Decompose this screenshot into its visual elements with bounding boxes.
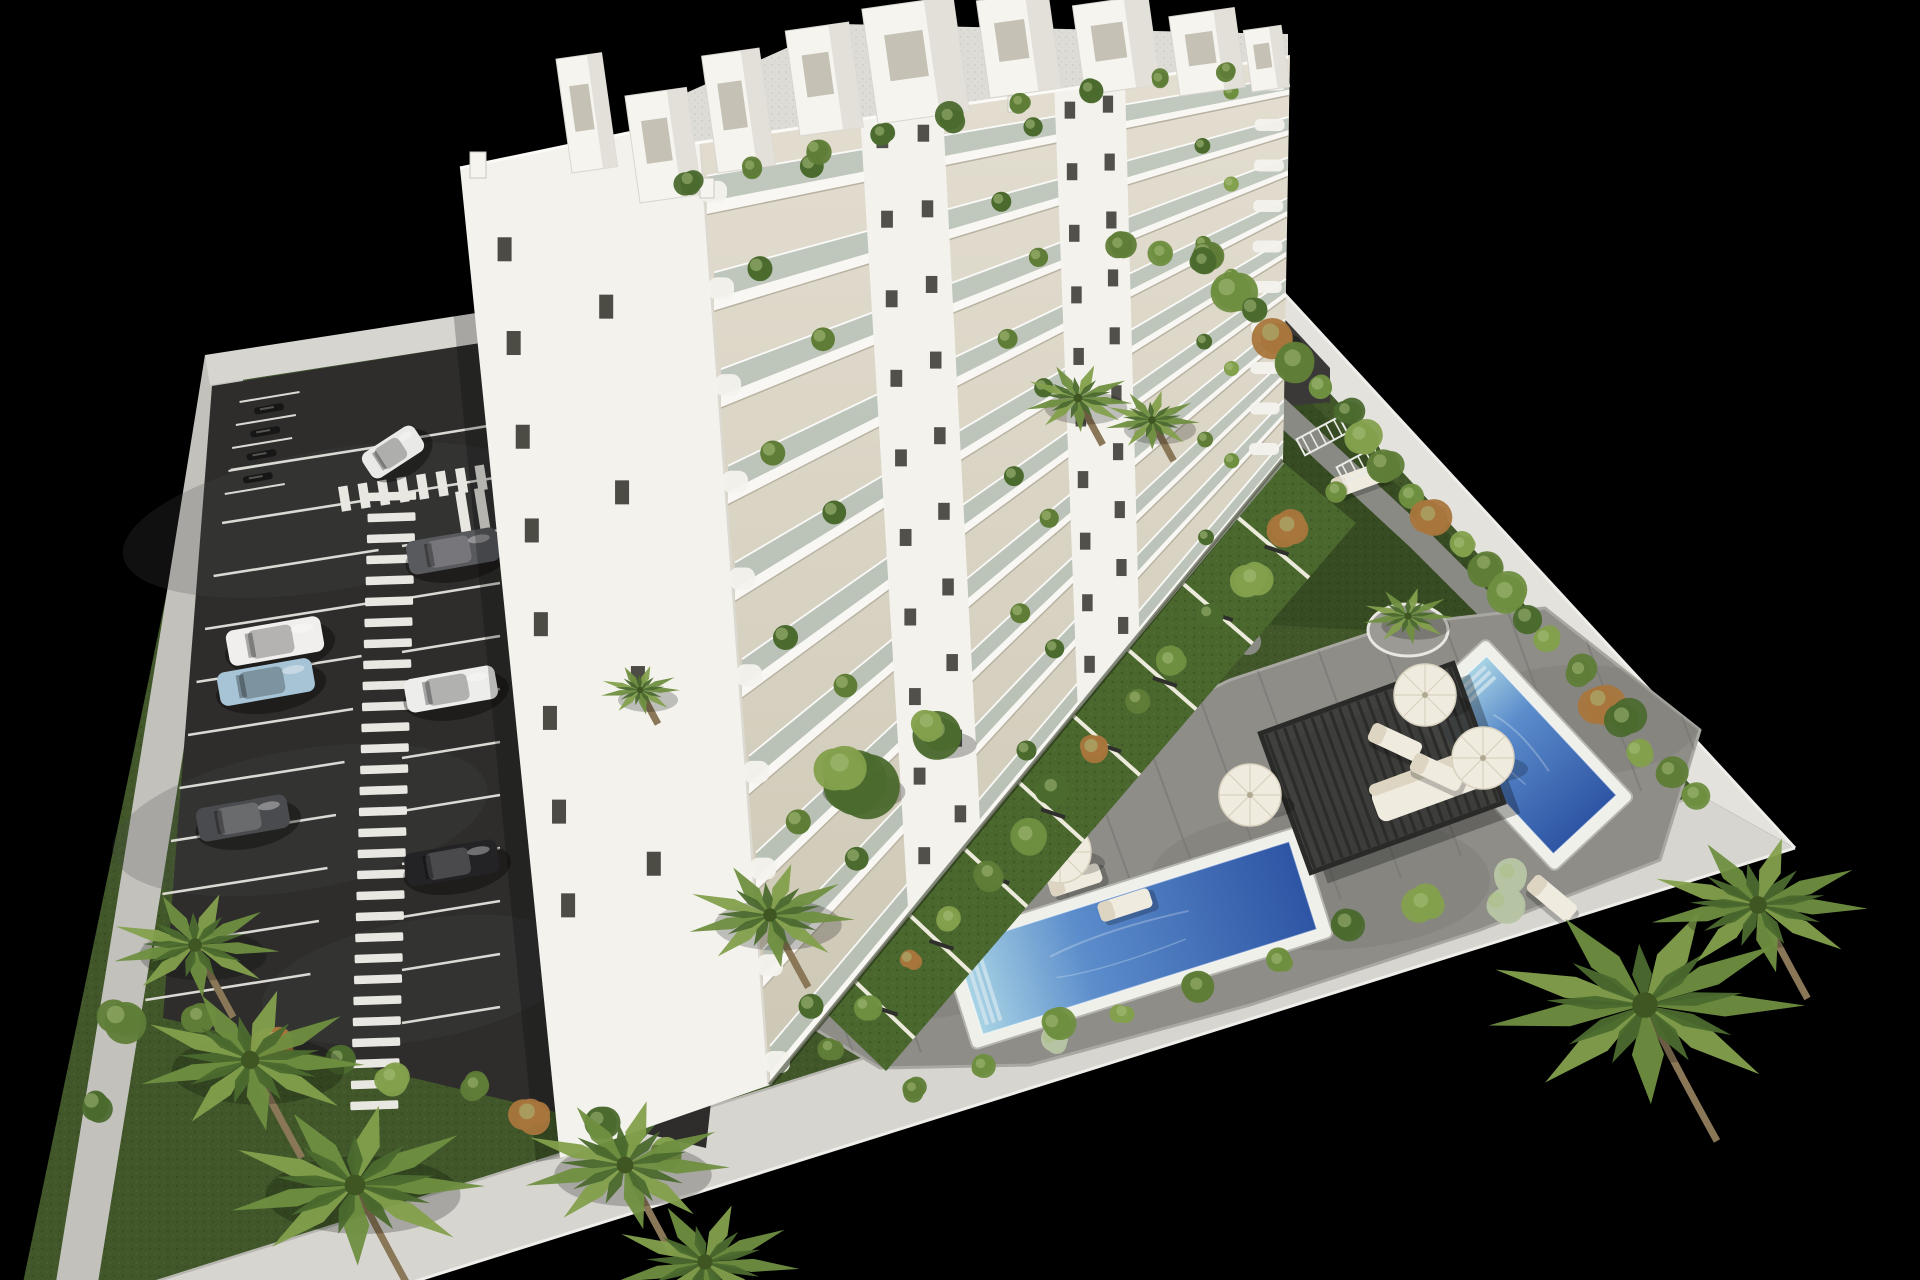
balcony-plant [834, 674, 858, 698]
balcony-plant [1197, 432, 1213, 448]
gable-window [498, 237, 512, 261]
pier-window [1082, 594, 1093, 611]
pier-window [918, 125, 930, 142]
pier-window [946, 654, 958, 671]
pier-window [1067, 163, 1078, 180]
pier-window [1078, 471, 1089, 488]
balcony-plant [760, 441, 785, 466]
pier-window [918, 847, 930, 864]
balcony-plant [747, 256, 772, 281]
balcony-plant [1224, 176, 1239, 191]
gable-window [561, 893, 575, 917]
balcony-plant [822, 501, 846, 525]
bush [1147, 241, 1173, 267]
balcony-plant [773, 625, 798, 650]
gable-window [507, 331, 521, 355]
gable-window [552, 800, 566, 824]
pier-window [930, 352, 942, 369]
pier-window [1065, 102, 1076, 119]
balcony-plant [1017, 741, 1037, 761]
balcony-plant [786, 809, 811, 834]
pier-window [1069, 225, 1080, 242]
balcony-plant [845, 847, 869, 871]
roof-penthouse [1169, 8, 1245, 96]
pier-window [1118, 617, 1128, 634]
roof-vent [470, 152, 486, 178]
pier-window [886, 290, 898, 307]
pier-window [1105, 154, 1115, 171]
gable-window [525, 518, 539, 542]
bush [1152, 68, 1169, 88]
pier-window [926, 276, 938, 293]
bush [806, 139, 831, 164]
pier-window [1115, 501, 1125, 518]
pier-window [1113, 443, 1123, 460]
pier-window [1080, 533, 1091, 550]
balcony-plant [1195, 138, 1211, 154]
balcony-plant [1198, 529, 1214, 545]
balcony-plant [799, 994, 824, 1019]
balcony-plant [998, 329, 1018, 349]
balcony-plant [1045, 639, 1064, 658]
scene-canvas [0, 0, 1920, 1280]
pier-window [890, 370, 902, 387]
balcony-plant [1004, 466, 1024, 486]
pier-window [955, 805, 967, 822]
pier-window [922, 200, 934, 217]
pier-window [900, 529, 912, 546]
pier-window [1103, 96, 1113, 113]
balcony-plant [1040, 509, 1059, 528]
pier-window [914, 768, 926, 785]
roof-penthouse [1243, 25, 1289, 92]
gable-window [516, 425, 530, 449]
balcony-plant [1023, 117, 1042, 136]
balcony-plant [1029, 248, 1048, 267]
gable-window [615, 480, 629, 504]
balcony-plant [1224, 361, 1239, 376]
aerial-site-render [0, 0, 1920, 1280]
pier-window [942, 578, 954, 595]
pier-window [1110, 327, 1120, 344]
balcony-plant [811, 327, 835, 351]
gable-window [599, 295, 613, 319]
balcony-plant [991, 192, 1011, 212]
pier-window [1084, 656, 1095, 673]
pier-window [881, 211, 893, 228]
bush [854, 995, 882, 1020]
gable-window [647, 852, 661, 876]
pier-window [1116, 559, 1126, 576]
pier-window [1071, 286, 1082, 303]
pier-window [934, 427, 946, 444]
pier-window [909, 688, 921, 705]
gable-window [543, 706, 557, 730]
roof-penthouse [976, 0, 1061, 98]
bush [742, 156, 762, 179]
gable-window [534, 612, 548, 636]
balcony-plant [1010, 603, 1030, 623]
pier-window [938, 503, 950, 520]
pier-window [1073, 348, 1084, 365]
bush [1513, 605, 1542, 634]
balcony-plant [1224, 453, 1239, 468]
pier-window [1106, 211, 1116, 228]
bush [972, 1054, 996, 1078]
pier-window [1108, 269, 1118, 286]
balcony-plant [1196, 334, 1212, 350]
bush [1325, 481, 1347, 503]
pier-window [904, 609, 916, 626]
pier-window [895, 449, 907, 466]
bush [1125, 689, 1150, 714]
